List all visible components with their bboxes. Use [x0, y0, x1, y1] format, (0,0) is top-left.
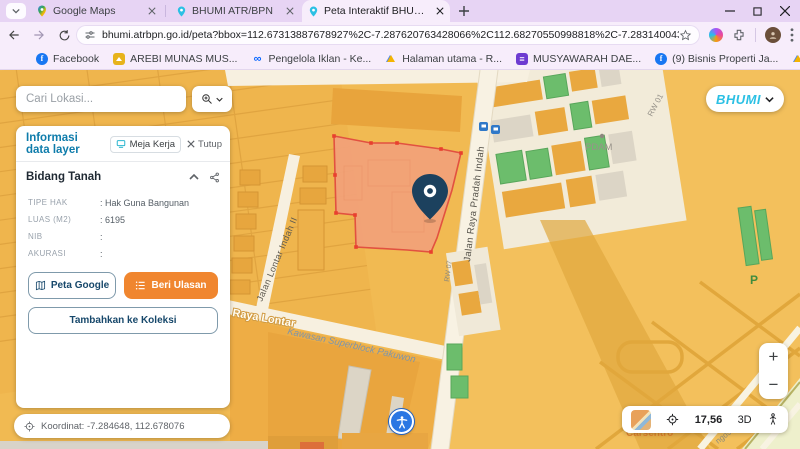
chevron-down-icon: [12, 7, 20, 15]
bookmark-label: MUSYAWARAH DAE...: [533, 53, 641, 65]
bookmark-label: Halaman utama - R...: [402, 53, 502, 65]
browser-toolbar: bhumi.atrbpn.go.id/peta?bbox=112.6731388…: [0, 22, 800, 48]
coordinate-text: Koordinat: -7.284648, 112.678076: [41, 421, 185, 432]
bhumi-pin-icon: [176, 6, 187, 17]
field-row: LUAS (M2) : 6195: [28, 211, 218, 228]
coordinate-readout: Koordinat: -7.284648, 112.678076: [14, 414, 230, 438]
pdam-label: PDAM: [585, 142, 613, 153]
beri-ulasan-label: Beri Ulasan: [151, 280, 206, 291]
browser-window: Google Maps BHUMI ATR/BPN Peta Interakti…: [0, 0, 800, 449]
bookmark-label: Facebook: [53, 53, 99, 65]
google-maps-icon: [36, 5, 48, 17]
tab-google-maps[interactable]: Google Maps: [30, 0, 162, 22]
field-label: LUAS (M2): [28, 215, 100, 224]
share-icon[interactable]: [209, 172, 220, 183]
pegman-icon[interactable]: [767, 413, 779, 426]
peta-google-label: Peta Google: [51, 280, 109, 291]
zoom-control: + −: [759, 343, 788, 399]
basemap-thumbnail[interactable]: [631, 410, 651, 430]
url-text: bhumi.atrbpn.go.id/peta?bbox=112.6731388…: [102, 29, 679, 41]
bookmark-bisnis-properti[interactable]: (9) Bisnis Properti Ja...: [655, 53, 778, 65]
minimize-button[interactable]: [725, 6, 735, 16]
facebook-icon: [36, 53, 48, 65]
forward-button[interactable]: [28, 24, 50, 46]
tab-label: Google Maps: [53, 5, 143, 17]
bookmark-facebook[interactable]: Facebook: [36, 53, 99, 65]
field-value: : 6195: [100, 215, 125, 225]
field-label: AKURASI: [28, 249, 100, 258]
map-block: [300, 442, 324, 449]
close-panel-button[interactable]: Tutup: [187, 139, 222, 150]
map-green-building: [451, 376, 468, 398]
locate-icon[interactable]: [666, 413, 679, 426]
field-row: AKURASI :: [28, 245, 218, 262]
meja-kerja-button[interactable]: Meja Kerja: [110, 136, 181, 153]
bookmark-halaman-utama-1[interactable]: Halaman utama - R...: [385, 53, 502, 65]
tab-separator: [165, 5, 166, 17]
address-bar[interactable]: bhumi.atrbpn.go.id/peta?bbox=112.6731388…: [76, 25, 700, 45]
bidang-tanah-row[interactable]: Bidang Tanah: [16, 162, 230, 190]
map-icon: [35, 280, 46, 291]
close-icon: [187, 140, 195, 148]
field-label: TIPE HAK: [28, 198, 100, 207]
bookmark-label: AREBI MUNAS MUS...: [130, 53, 237, 65]
arebi-icon: [113, 53, 125, 65]
extensions-puzzle-icon[interactable]: [732, 28, 746, 42]
field-value: : Hak Guna Bangunan: [100, 198, 189, 208]
profile-avatar[interactable]: [765, 27, 781, 43]
chevron-up-icon[interactable]: [189, 172, 199, 182]
crosshair-icon: [24, 421, 35, 432]
parking-label: P: [750, 273, 758, 287]
facebook-icon: [655, 53, 667, 65]
zoom-level-value[interactable]: 17,56: [695, 414, 723, 426]
menu-kebab-icon[interactable]: [790, 28, 794, 42]
tab-bhumi[interactable]: BHUMI ATR/BPN: [170, 0, 300, 22]
accessibility-person-icon: [395, 415, 409, 429]
meta-icon: [251, 53, 263, 65]
tambah-koleksi-button[interactable]: Tambahkan ke Koleksi: [28, 307, 218, 334]
site-settings-icon[interactable]: [84, 29, 96, 41]
bookmarks-bar: Facebook AREBI MUNAS MUS... Pengelola Ik…: [0, 48, 800, 70]
map-bottom-road: [0, 441, 268, 449]
review-list-icon: [135, 280, 146, 291]
tab-label: BHUMI ATR/BPN: [192, 5, 281, 17]
bookmark-label: Pengelola Iklan - Ke...: [268, 53, 371, 65]
close-icon[interactable]: [436, 7, 444, 15]
bookmark-arebi[interactable]: AREBI MUNAS MUS...: [113, 53, 237, 65]
zoom-in-button[interactable]: +: [759, 343, 788, 371]
panel-title: Informasi data layer: [26, 132, 104, 156]
map-block: [342, 433, 428, 449]
maximize-button[interactable]: [753, 7, 762, 16]
search-box[interactable]: [16, 86, 186, 112]
plus-icon: [459, 6, 469, 16]
bookmark-star-icon[interactable]: [679, 29, 692, 42]
workspace-icon: [116, 139, 126, 149]
map-canvas[interactable]: Jalan Lontar Indah II Jalan Raya Pradah …: [0, 70, 800, 449]
field-value: :: [100, 249, 103, 259]
tab-strip: Google Maps BHUMI ATR/BPN Peta Interakti…: [0, 0, 800, 22]
bhumi-logo-button[interactable]: BHUMI: [706, 86, 784, 112]
musyawarah-icon: [516, 53, 528, 65]
map-toolbar: 17,56 3D: [622, 406, 788, 433]
tab-search-button[interactable]: [6, 3, 26, 19]
meja-kerja-label: Meja Kerja: [130, 139, 175, 150]
accessibility-button[interactable]: [389, 409, 414, 434]
field-row: NIB :: [28, 228, 218, 245]
map-green-building: [447, 344, 462, 370]
field-row: TIPE HAK : Hak Guna Bangunan: [28, 194, 218, 211]
google-ads-icon: [385, 53, 397, 65]
bhumi-logo: BHUMI: [716, 92, 761, 107]
section-title: Bidang Tanah: [26, 171, 189, 183]
refresh-button[interactable]: [53, 24, 75, 46]
window-controls: [725, 0, 800, 22]
search-input[interactable]: [16, 93, 180, 105]
mode-3d-button[interactable]: 3D: [738, 414, 752, 426]
google-ads-icon: [792, 53, 800, 65]
extension-icon[interactable]: [709, 28, 723, 42]
chevron-down-icon: [765, 95, 774, 104]
info-panel: Informasi data layer Meja Kerja Tutup Bi…: [16, 126, 230, 408]
chevron-down-icon: [216, 96, 223, 103]
panel-header: Informasi data layer Meja Kerja Tutup: [16, 126, 230, 162]
advanced-search-button[interactable]: [192, 86, 232, 112]
close-icon[interactable]: [148, 7, 156, 15]
new-tab-button[interactable]: [456, 3, 472, 19]
tutup-label: Tutup: [198, 139, 222, 150]
bookmark-label: (9) Bisnis Properti Ja...: [672, 53, 778, 65]
bookmark-halaman-utama-2[interactable]: Halaman utama - R...: [792, 53, 800, 65]
close-window-button[interactable]: [780, 6, 790, 16]
bhumi-pin-icon: [308, 6, 319, 17]
tab-peta-interaktif-active[interactable]: Peta Interaktif BHUMI ATR/BPN: [302, 0, 450, 22]
field-label: NIB: [28, 232, 100, 241]
extension-area: [709, 25, 794, 45]
field-value: :: [100, 232, 103, 242]
search-plus-icon: [201, 93, 213, 105]
panel-buttons: Peta Google Beri Ulasan: [16, 262, 230, 299]
peta-google-button[interactable]: Peta Google: [28, 272, 116, 299]
parcel-fields: TIPE HAK : Hak Guna Bangunan LUAS (M2) :…: [16, 190, 230, 262]
close-icon[interactable]: [286, 7, 294, 15]
back-button[interactable]: [3, 24, 25, 46]
zoom-out-button[interactable]: −: [759, 371, 788, 399]
tambah-koleksi-label: Tambahkan ke Koleksi: [69, 315, 176, 326]
tab-label: Peta Interaktif BHUMI ATR/BPN: [324, 5, 431, 17]
beri-ulasan-button[interactable]: Beri Ulasan: [124, 272, 218, 299]
toolbar-divider: [755, 28, 756, 42]
bookmark-musyawarah[interactable]: MUSYAWARAH DAE...: [516, 53, 641, 65]
bookmark-pengelola-iklan[interactable]: Pengelola Iklan - Ke...: [251, 53, 371, 65]
